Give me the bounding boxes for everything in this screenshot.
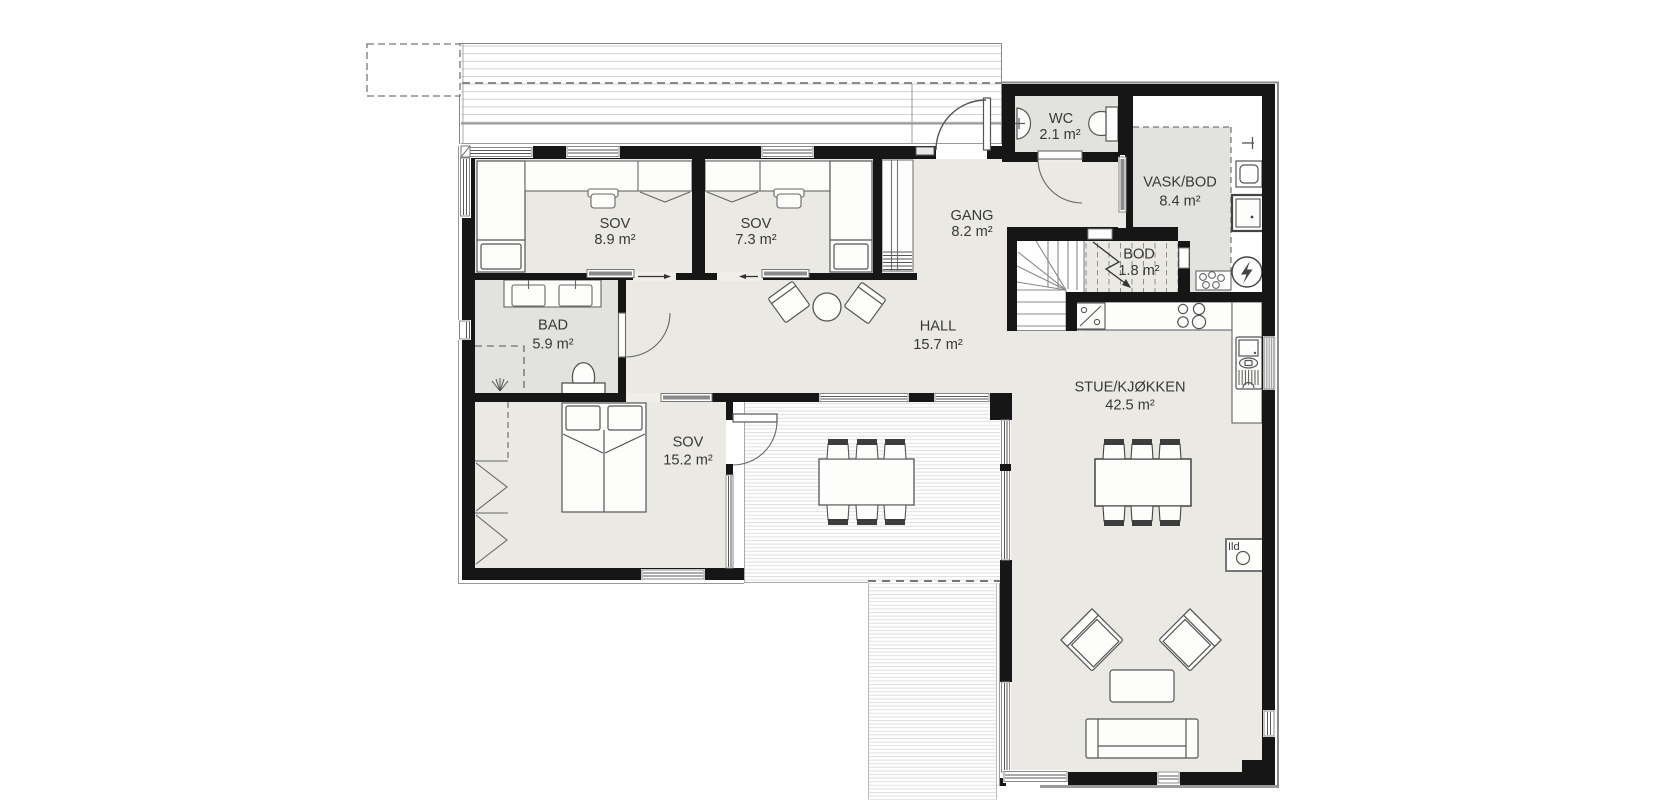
svg-text:SOV: SOV [600,216,631,232]
svg-text:VASK/BOD: VASK/BOD [1143,175,1217,191]
svg-text:SOV: SOV [673,435,704,451]
svg-text:SOV: SOV [741,216,772,232]
svg-text:WC: WC [1049,111,1073,127]
svg-text:1.8 m²: 1.8 m² [1118,263,1159,279]
svg-text:42.5 m²: 42.5 m² [1105,398,1155,414]
svg-text:8.9 m²: 8.9 m² [594,232,635,248]
svg-text:15.2 m²: 15.2 m² [663,453,713,469]
svg-text:STUE/KJØKKEN: STUE/KJØKKEN [1074,380,1185,396]
svg-text:HALL: HALL [920,319,957,335]
svg-text:BAD: BAD [538,318,568,334]
svg-text:GANG: GANG [951,208,994,224]
svg-text:15.7 m²: 15.7 m² [913,337,963,353]
svg-text:5.9 m²: 5.9 m² [532,337,573,353]
svg-text:7.3 m²: 7.3 m² [735,232,776,248]
svg-text:2.1 m²: 2.1 m² [1039,127,1080,143]
svg-text:8.2 m²: 8.2 m² [951,224,992,240]
svg-text:BOD: BOD [1123,247,1155,263]
svg-text:Ild: Ild [1228,541,1240,553]
svg-text:8.4 m²: 8.4 m² [1159,194,1200,210]
